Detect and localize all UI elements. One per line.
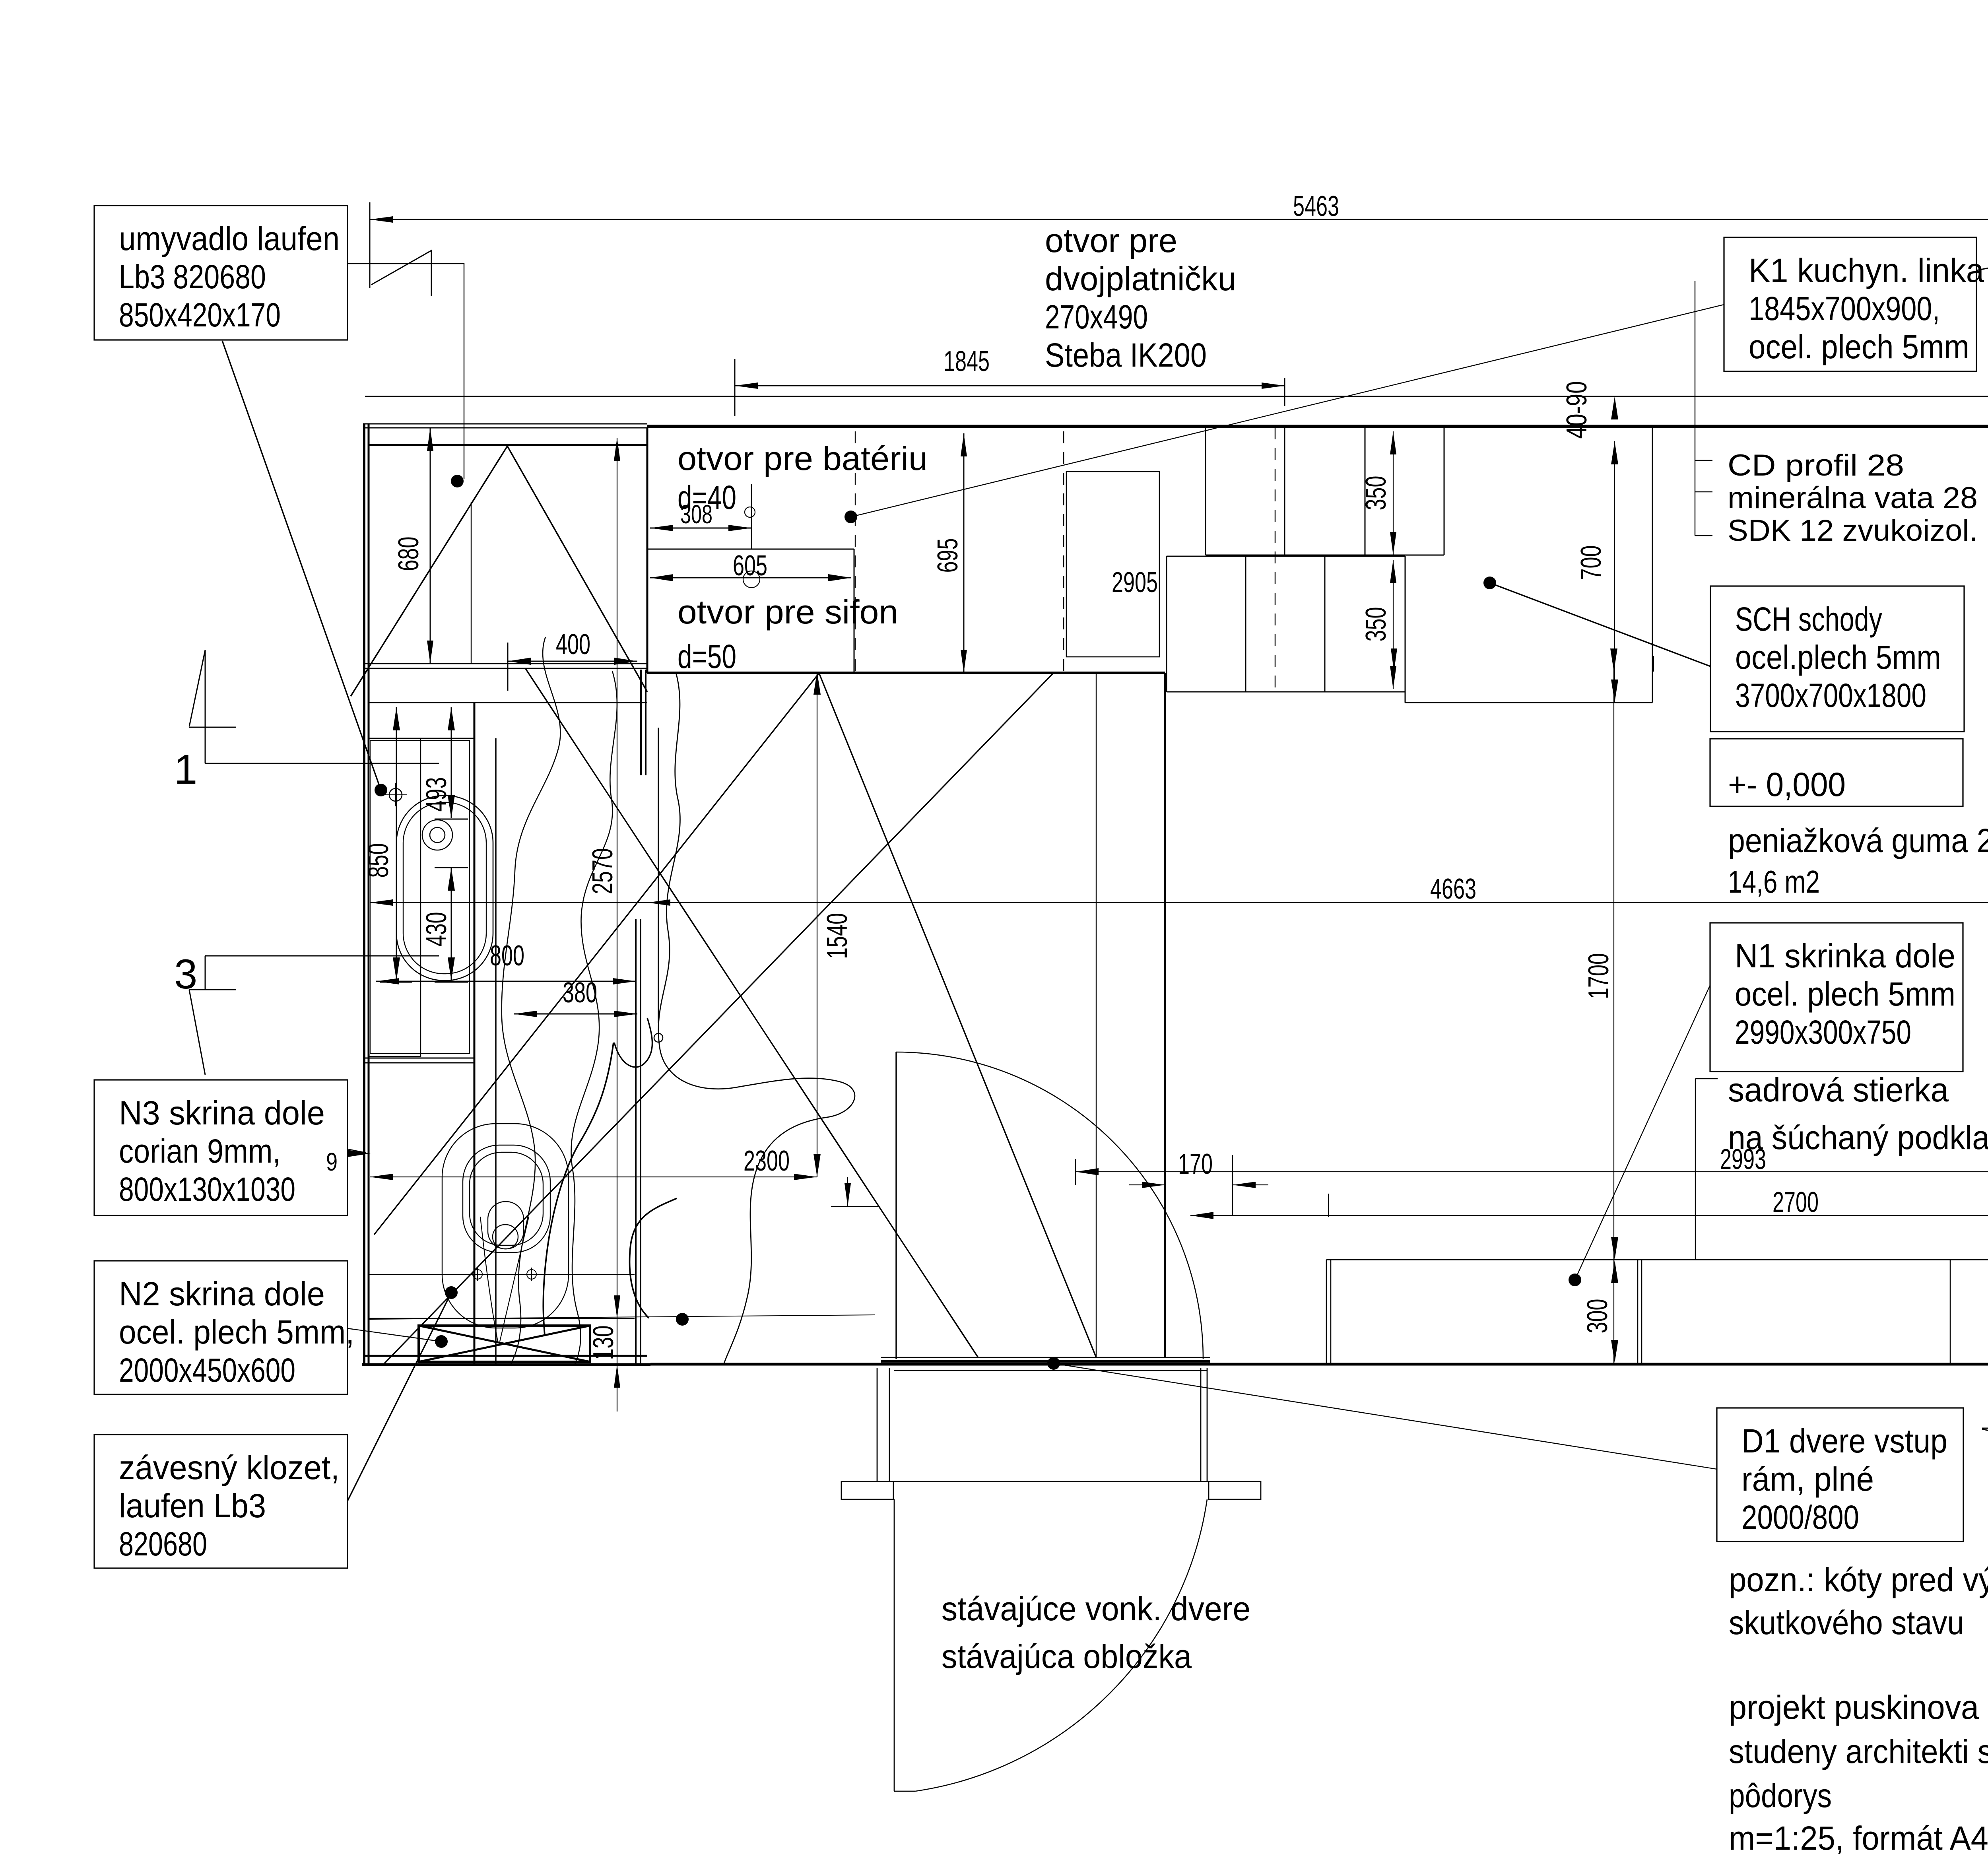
svg-text:1540: 1540 xyxy=(821,913,853,959)
svg-text:4663: 4663 xyxy=(1430,873,1476,905)
svg-text:D1 dvere vstup: D1 dvere vstup xyxy=(1741,1422,1947,1460)
svg-text:ocel. plech 5mm,: ocel. plech 5mm, xyxy=(119,1313,354,1351)
svg-text:5463: 5463 xyxy=(1293,190,1339,222)
svg-text:stávajúca obložka: stávajúca obložka xyxy=(942,1638,1192,1675)
svg-text:850x420x170: 850x420x170 xyxy=(119,296,281,334)
svg-text:N1 skrinka dole: N1 skrinka dole xyxy=(1735,937,1955,975)
svg-text:3: 3 xyxy=(174,951,197,998)
svg-text:800x130x1030: 800x130x1030 xyxy=(119,1171,295,1208)
svg-text:otvor pre batériu: otvor pre batériu xyxy=(678,440,928,477)
svg-text:1700: 1700 xyxy=(1583,953,1615,999)
svg-text:dvojplatničku: dvojplatničku xyxy=(1045,260,1236,297)
svg-text:400: 400 xyxy=(556,629,590,660)
svg-text:závesný klozet,: závesný klozet, xyxy=(119,1449,340,1486)
svg-text:sadrová stierka: sadrová stierka xyxy=(1728,1071,1949,1109)
svg-text:2990x300x750: 2990x300x750 xyxy=(1735,1013,1911,1051)
svg-text:430: 430 xyxy=(421,912,452,947)
svg-text:CD profil 28: CD profil 28 xyxy=(1728,448,1904,482)
svg-text:studeny architekti s. r. o,: studeny architekti s. r. o, xyxy=(1729,1733,1988,1770)
svg-text:2570: 2570 xyxy=(587,848,619,894)
svg-text:Steba IK200: Steba IK200 xyxy=(1045,336,1207,374)
svg-text:2000x450x600: 2000x450x600 xyxy=(119,1351,295,1389)
svg-text:300: 300 xyxy=(1582,1299,1613,1334)
svg-text:umyvadlo laufen: umyvadlo laufen xyxy=(119,220,340,257)
svg-text:Lb3 820680: Lb3 820680 xyxy=(119,258,266,295)
svg-text:2905: 2905 xyxy=(1112,567,1158,598)
svg-text:otvor pre: otvor pre xyxy=(1045,222,1177,259)
svg-text:820680: 820680 xyxy=(119,1525,207,1563)
svg-text:d=40: d=40 xyxy=(678,479,736,516)
svg-text:493: 493 xyxy=(421,777,452,812)
svg-text:605: 605 xyxy=(733,550,767,582)
svg-text:projekt puskinova: projekt puskinova xyxy=(1729,1689,1979,1726)
svg-text:1845: 1845 xyxy=(944,346,990,377)
svg-text:otvor pre sifon: otvor pre sifon xyxy=(678,593,898,631)
svg-text:2000/800: 2000/800 xyxy=(1741,1499,1859,1536)
svg-text:SDK 12 zvukoizol.: SDK 12 zvukoizol. xyxy=(1728,514,1978,548)
svg-text:ocel.plech 5mm: ocel.plech 5mm xyxy=(1735,639,1941,676)
svg-text:skutkového stavu: skutkového stavu xyxy=(1729,1604,1964,1641)
svg-text:3700x700x1800: 3700x700x1800 xyxy=(1735,677,1926,714)
svg-text:680: 680 xyxy=(393,537,425,571)
svg-text:N3 skrina dole: N3 skrina dole xyxy=(119,1094,325,1132)
svg-text:SCH schody: SCH schody xyxy=(1735,600,1882,638)
svg-text:rám, plné: rám, plné xyxy=(1741,1460,1874,1498)
svg-text:corian 9mm,: corian 9mm, xyxy=(119,1132,281,1170)
svg-text:pôdorys: pôdorys xyxy=(1729,1777,1832,1814)
svg-text:130: 130 xyxy=(588,1326,619,1360)
svg-text:695: 695 xyxy=(932,538,964,573)
svg-text:m=1:25, formát A4, dátum 7. 1.: m=1:25, formát A4, dátum 7. 1. 2016 xyxy=(1729,1819,1988,1857)
svg-text:stávajúce vonk. dvere: stávajúce vonk. dvere xyxy=(942,1590,1250,1627)
svg-text:40-90: 40-90 xyxy=(1561,381,1593,439)
svg-text:ocel. plech 5mm: ocel. plech 5mm xyxy=(1749,328,1969,365)
svg-text:9: 9 xyxy=(326,1147,338,1176)
svg-text:K1 kuchyn. linka: K1 kuchyn. linka xyxy=(1749,252,1984,289)
svg-text:laufen Lb3: laufen Lb3 xyxy=(119,1487,266,1524)
svg-text:2300: 2300 xyxy=(744,1145,790,1177)
svg-text:+- 0,000: +- 0,000 xyxy=(1728,766,1846,803)
svg-text:850: 850 xyxy=(363,843,394,878)
svg-text:14,6 m2: 14,6 m2 xyxy=(1728,864,1820,899)
svg-text:1845x700x900,: 1845x700x900, xyxy=(1749,290,1940,327)
svg-text:minerálna vata 28: minerálna vata 28 xyxy=(1728,481,1978,515)
svg-text:350: 350 xyxy=(1360,476,1392,511)
svg-text:d=50: d=50 xyxy=(678,638,736,675)
svg-text:700: 700 xyxy=(1575,546,1607,580)
svg-text:pozn.: kóty pred výrobou preme: pozn.: kóty pred výrobou premerať podľa xyxy=(1729,1561,1988,1598)
svg-text:peniažková guma 2,5mm: peniažková guma 2,5mm xyxy=(1728,822,1988,859)
svg-text:N2 skrina dole: N2 skrina dole xyxy=(119,1275,325,1312)
svg-text:ocel. plech 5mm: ocel. plech 5mm xyxy=(1735,975,1955,1013)
svg-text:1: 1 xyxy=(174,746,197,793)
svg-text:270x490: 270x490 xyxy=(1045,298,1148,336)
svg-text:2700: 2700 xyxy=(1773,1186,1819,1218)
svg-text:na šúchaný podklad: na šúchaný podklad xyxy=(1728,1119,1988,1156)
svg-text:350: 350 xyxy=(1360,607,1392,642)
svg-text:170: 170 xyxy=(1178,1148,1213,1180)
